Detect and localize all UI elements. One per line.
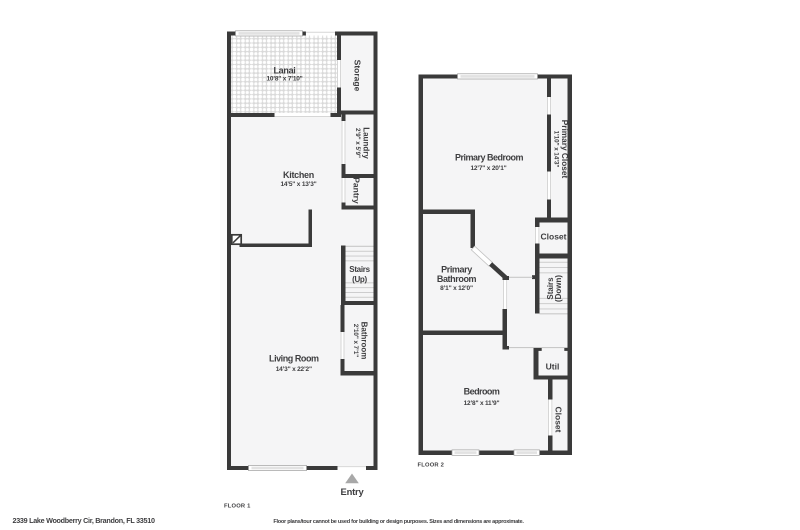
svg-text:2’9" x 5’9": 2’9" x 5’9"	[354, 128, 361, 158]
svg-text:FLOOR 2: FLOOR 2	[418, 463, 445, 469]
svg-text:Bathroom: Bathroom	[360, 322, 369, 360]
svg-text:1’10" x 14’3": 1’10" x 14’3"	[553, 131, 560, 168]
svg-text:Lanai: Lanai	[273, 66, 295, 76]
svg-text:Stairs: Stairs	[349, 265, 370, 274]
svg-text:FLOOR 1: FLOOR 1	[224, 504, 251, 510]
svg-text:10’8" x 7’10": 10’8" x 7’10"	[266, 76, 302, 83]
svg-text:Primary Bedroom: Primary Bedroom	[455, 153, 524, 163]
svg-text:(Up): (Up)	[352, 275, 367, 284]
svg-text:Util: Util	[546, 362, 560, 372]
svg-text:8’1" x 12’0": 8’1" x 12’0"	[440, 285, 473, 292]
svg-text:12’8" x 11’9": 12’8" x 11’9"	[464, 400, 500, 407]
svg-text:Living Room: Living Room	[269, 354, 319, 364]
svg-text:2339 Lake Woodberry Cir, Brand: 2339 Lake Woodberry Cir, Brandon, FL 335…	[13, 516, 155, 525]
svg-text:Laundry: Laundry	[362, 127, 371, 159]
svg-text:Closet: Closet	[541, 232, 567, 242]
svg-text:14’3" x 22’2": 14’3" x 22’2"	[276, 366, 312, 373]
svg-text:Entry: Entry	[341, 486, 365, 497]
svg-text:Bedroom: Bedroom	[464, 387, 500, 397]
svg-text:Bathroom: Bathroom	[437, 274, 477, 284]
svg-text:2’10" x 7’1": 2’10" x 7’1"	[352, 324, 359, 357]
svg-text:Closet: Closet	[554, 407, 564, 433]
svg-text:12’7" x 20’1": 12’7" x 20’1"	[470, 165, 506, 172]
svg-text:(Down): (Down)	[554, 275, 563, 302]
svg-text:Pantry: Pantry	[352, 177, 362, 204]
svg-text:14’5" x 13’3": 14’5" x 13’3"	[280, 181, 316, 188]
svg-text:Kitchen: Kitchen	[283, 170, 314, 180]
svg-text:Storage: Storage	[352, 60, 362, 92]
svg-text:Floor plans/tour cannot be use: Floor plans/tour cannot be used for buil…	[273, 519, 524, 525]
